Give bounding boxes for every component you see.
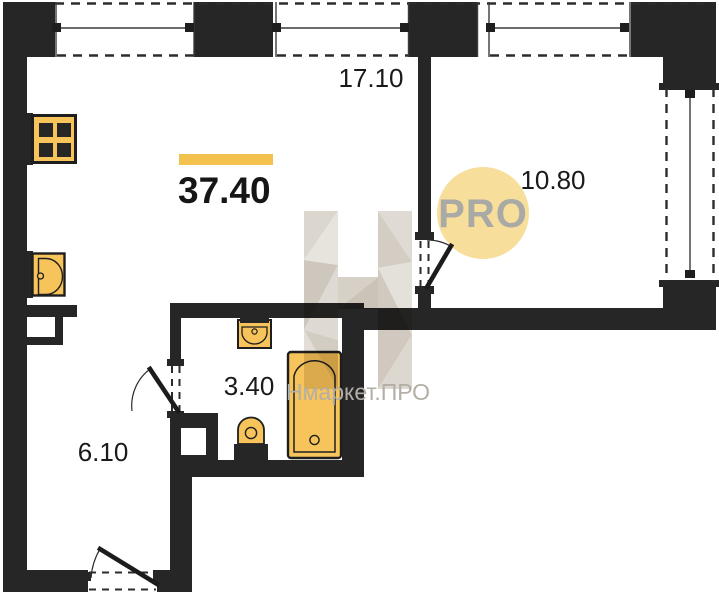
window-pier-2 (409, 2, 477, 57)
vent-shaft (25, 305, 77, 317)
floorplan-canvas: PRO (0, 0, 719, 600)
total-area-label: 37.40 (178, 170, 271, 211)
watermark-label: Нмаркет.ПРО (286, 379, 430, 405)
windows-top (52, 2, 714, 57)
window-1 (52, 23, 194, 32)
pro-badge-label: PRO (438, 192, 528, 236)
bathroom-sink-icon (238, 317, 271, 348)
window-right (667, 88, 714, 282)
accent-bar (179, 154, 273, 165)
window-pier-1 (194, 2, 273, 57)
bathroom-door (132, 366, 180, 411)
bedroom-door (421, 240, 453, 287)
entrance-door (89, 549, 157, 590)
shaft-box-inner (181, 428, 206, 455)
window-2 (272, 23, 409, 32)
kitchen-sink-icon (33, 254, 65, 296)
toilet-icon (234, 417, 268, 460)
bathroom-area-label: 3.40 (224, 371, 275, 401)
living-room-area-label: 17.10 (338, 63, 403, 93)
floorplan-svg: PRO (0, 0, 719, 600)
fixtures (33, 116, 342, 461)
bedroom-area-label: 10.80 (520, 165, 585, 195)
stove-icon (33, 116, 76, 163)
window-3 (486, 23, 629, 32)
hallway-area-label: 6.10 (78, 437, 129, 467)
